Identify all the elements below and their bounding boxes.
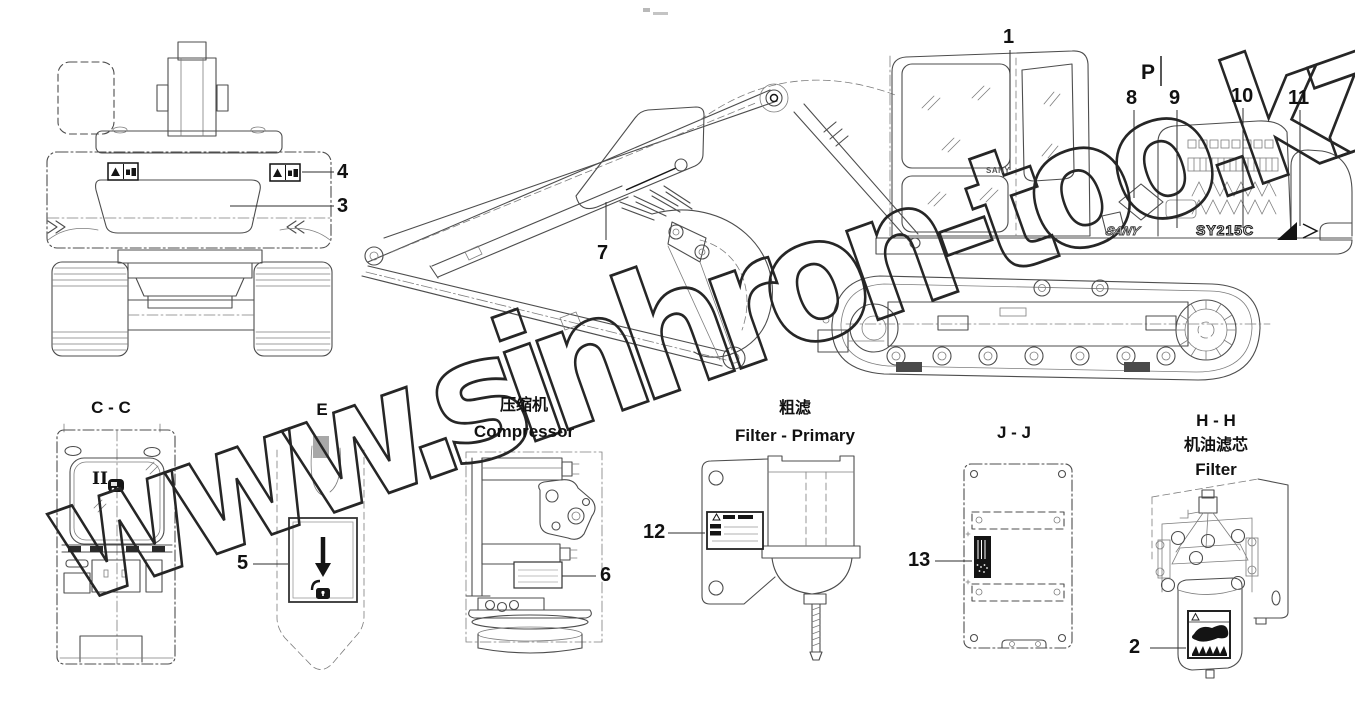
hood-grille xyxy=(1166,140,1278,218)
compressor-decal xyxy=(514,562,562,588)
chevron-decal xyxy=(1303,224,1317,238)
rear-view-drawing xyxy=(47,42,332,356)
cab-brand-decal: SANY xyxy=(986,166,1010,175)
section-marker-p: P xyxy=(1141,62,1155,83)
title-filter-primary-en: Filter - Primary xyxy=(735,426,855,446)
compressor-drawing xyxy=(466,452,602,653)
callout-1: 1 xyxy=(1003,27,1014,47)
callout-8: 8 xyxy=(1126,88,1137,108)
boom-decal-panel xyxy=(576,107,704,209)
title-section-jj: J - J xyxy=(997,423,1031,443)
unlock-decal xyxy=(289,518,357,602)
bucket-teeth xyxy=(620,186,692,220)
callout-9: 9 xyxy=(1169,88,1180,108)
line-art-layer xyxy=(0,0,1355,706)
title-oil-filter-zh: 机油滤芯 xyxy=(1184,437,1248,455)
callout-11: 11 xyxy=(1288,88,1309,108)
callout-4: 4 xyxy=(337,162,348,182)
callout-13: 13 xyxy=(908,550,930,570)
title-filter-primary-zh: 粗滤 xyxy=(779,400,811,418)
section-e-drawing xyxy=(277,436,364,670)
diamond-decal xyxy=(1119,184,1163,220)
title-section-e: E xyxy=(316,400,327,420)
title-compressor-zh: 压缩机 xyxy=(500,397,548,415)
warning-decal-right xyxy=(270,164,300,181)
oil-filter-decal xyxy=(1188,611,1230,658)
side-view-drawing xyxy=(362,51,1352,380)
roman-numeral-marker: II xyxy=(92,469,108,489)
model-number-decal: SY215C xyxy=(1196,222,1254,238)
title-compressor-en: Compressor xyxy=(474,422,574,442)
print-artifact xyxy=(643,8,668,15)
callout-2: 2 xyxy=(1129,637,1140,657)
title-section-hh: H - H xyxy=(1196,411,1236,431)
section-cc-drawing xyxy=(57,424,175,664)
filter-primary-decal xyxy=(707,512,763,549)
model-decal-triangle xyxy=(1277,222,1297,240)
filter-primary-drawing xyxy=(702,456,860,660)
callout-10: 10 xyxy=(1231,86,1253,106)
callout-12: 12 xyxy=(643,522,665,542)
title-oil-filter-en: Filter xyxy=(1195,460,1237,480)
glass-hatching xyxy=(922,86,1060,206)
parts-diagram-page: www.sinhron-too.kz 1 7 8 9 10 11 4 3 5 6… xyxy=(0,0,1355,706)
callout-6: 6 xyxy=(600,565,611,585)
callout-3: 3 xyxy=(337,196,348,216)
cab-lock-icon xyxy=(108,479,124,492)
jj-dark-decal xyxy=(974,536,991,578)
section-jj-drawing xyxy=(964,464,1072,648)
warning-decal-left xyxy=(108,163,138,180)
callout-5: 5 xyxy=(237,553,248,573)
title-section-cc: C - C xyxy=(91,398,131,418)
side-logo-decal: SANY xyxy=(1105,224,1141,238)
callout-7: 7 xyxy=(597,243,608,263)
